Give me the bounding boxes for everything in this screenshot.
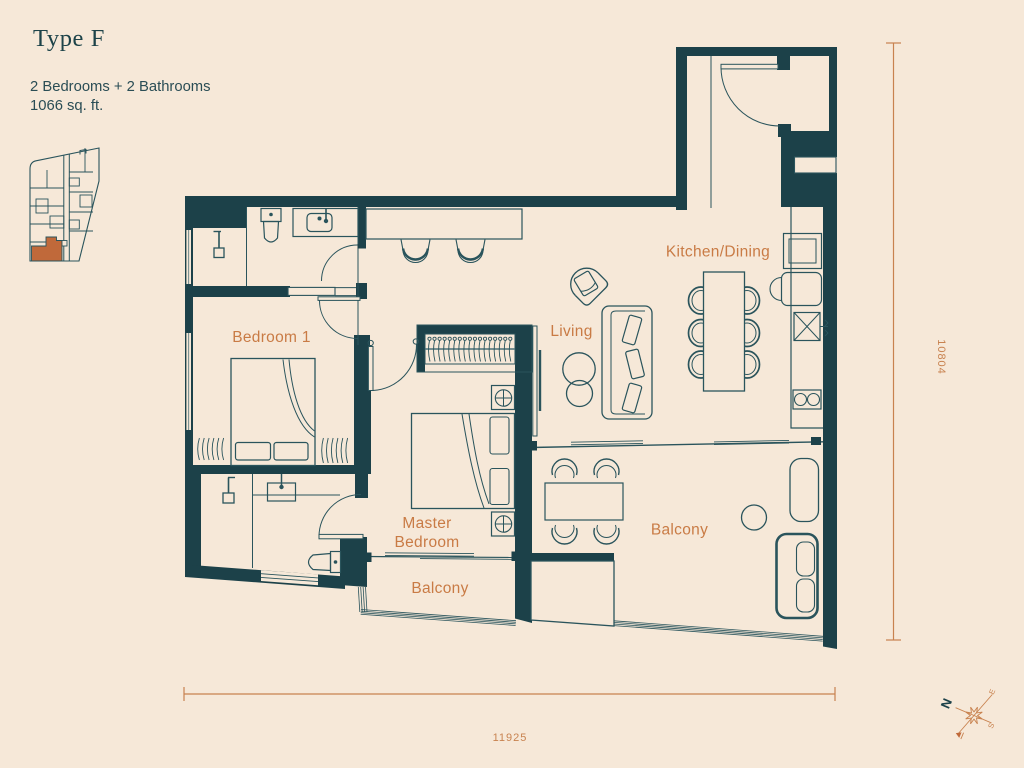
svg-text:10804: 10804	[935, 339, 947, 375]
svg-text:Balcony: Balcony	[411, 580, 468, 597]
svg-text:11925: 11925	[493, 732, 528, 744]
svg-text:E: E	[987, 687, 997, 695]
svg-text:Kitchen/Dining: Kitchen/Dining	[666, 244, 770, 261]
svg-text:Master: Master	[402, 515, 451, 532]
svg-text:Living: Living	[550, 323, 592, 340]
svg-text:N: N	[938, 696, 956, 711]
svg-text:Bedroom: Bedroom	[395, 534, 460, 551]
svg-text:Balcony: Balcony	[651, 522, 708, 539]
svg-text:Bedroom 1: Bedroom 1	[232, 329, 311, 346]
